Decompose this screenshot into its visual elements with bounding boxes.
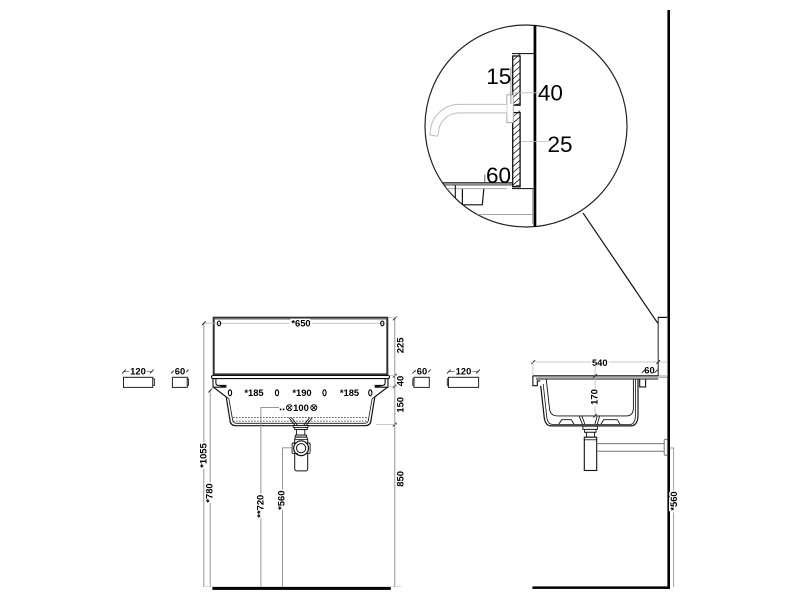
- svg-text:100: 100: [293, 402, 309, 413]
- svg-text:*185: *185: [340, 387, 359, 398]
- svg-text:*1055: *1055: [197, 443, 208, 468]
- svg-text:40: 40: [538, 81, 563, 106]
- svg-text:60: 60: [486, 163, 511, 188]
- svg-text:*185: *185: [244, 387, 263, 398]
- svg-text:*560: *560: [668, 491, 679, 510]
- svg-text:*560: *560: [276, 491, 287, 510]
- svg-text:*650: *650: [291, 318, 310, 329]
- svg-text:*780: *780: [204, 483, 215, 502]
- svg-text:15: 15: [486, 64, 511, 89]
- svg-text:120: 120: [130, 366, 146, 377]
- svg-text:60: 60: [644, 365, 654, 376]
- svg-text:540: 540: [592, 357, 608, 368]
- svg-text:25: 25: [547, 132, 572, 157]
- svg-text:170: 170: [589, 389, 600, 405]
- svg-text:40: 40: [394, 376, 405, 386]
- svg-text:60: 60: [417, 366, 427, 377]
- svg-text:120: 120: [456, 366, 472, 377]
- svg-text:**720: **720: [254, 495, 265, 518]
- svg-text:*190: *190: [292, 387, 311, 398]
- svg-text:60: 60: [175, 366, 185, 377]
- svg-text:150: 150: [394, 397, 405, 413]
- svg-text:850: 850: [394, 471, 405, 487]
- svg-text:225: 225: [394, 338, 405, 354]
